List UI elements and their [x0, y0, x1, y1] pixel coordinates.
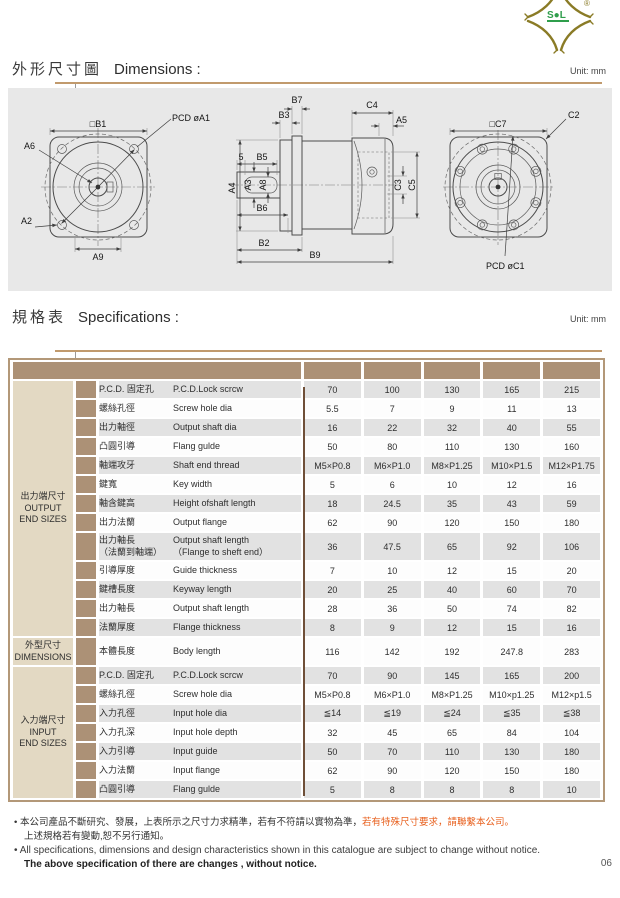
table-row: 出力軸長 （法蘭到軸端）Output shaft length （Flange …	[13, 533, 600, 560]
spec-value-cell: 130	[424, 381, 481, 398]
spec-label-zh: 螺絲孔徑	[99, 403, 173, 414]
spec-value-cell: 150	[483, 762, 540, 779]
spec-value-cell: 16	[304, 419, 361, 436]
spec-value-cell: 55	[543, 419, 600, 436]
spec-value-cell: M6×P1.0	[364, 686, 421, 703]
spec-value-cell: 142	[364, 638, 421, 665]
specifications-unit-label: Unit: mm	[570, 314, 606, 324]
spec-value-cell: 59	[543, 495, 600, 512]
dim-label-b2: B2	[258, 238, 269, 248]
table-header-size-cell	[483, 362, 540, 379]
spec-label-zh: 出力法蘭	[99, 517, 173, 528]
footnote-zh-line1: • 本公司產品不斷研究、發展，上表所示之尺寸力求精準，若有不符請以實物為準，若有…	[14, 816, 600, 830]
spec-value-cell: M12×p1.5	[543, 686, 600, 703]
spec-label-cell: 入力引導Input guide	[99, 743, 301, 760]
spec-value-cell: 12	[424, 562, 481, 579]
table-row: 入力孔徑Input hole dia≦14≦19≦24≦35≦38	[13, 705, 600, 722]
spec-label-en: Height ofshaft length	[173, 498, 301, 509]
spec-value-cell: 84	[483, 724, 540, 741]
group-color-cell	[76, 762, 96, 779]
spec-value-cell: 12	[483, 476, 540, 493]
spec-label-cell: 出力軸長Output shaft length	[99, 600, 301, 617]
table-row: 法蘭厚度Flange thickness89121516	[13, 619, 600, 636]
specifications-rule	[55, 350, 602, 352]
group-color-cell	[76, 619, 96, 636]
group-color-cell	[76, 638, 96, 665]
spec-value-cell: 25	[364, 581, 421, 598]
spec-label-en: Output shaft length	[173, 603, 301, 614]
group-color-cell	[76, 743, 96, 760]
dim-label-b3: B3	[278, 110, 289, 120]
group-color-cell	[76, 457, 96, 474]
spec-value-cell: 8	[364, 781, 421, 798]
spec-value-cell: M8×P1.25	[424, 686, 481, 703]
spec-value-cell: M5×P0.8	[304, 686, 361, 703]
dim-label-c2: C2	[568, 110, 580, 120]
group-color-cell	[76, 495, 96, 512]
spec-value-cell: M12×P1.75	[543, 457, 600, 474]
spec-label-cell: 軸端攻牙Shaft end thread	[99, 457, 301, 474]
group-color-cell	[76, 533, 96, 560]
spec-value-cell: 120	[424, 514, 481, 531]
spec-value-cell: ≦35	[483, 705, 540, 722]
dim-label-a6: A6	[24, 141, 35, 151]
dim-label-a2: A2	[21, 216, 32, 226]
logo-brand-text: S●L	[547, 10, 566, 21]
spec-value-cell: 283	[543, 638, 600, 665]
spec-label-en: Key width	[173, 479, 301, 490]
table-row: 引導厚度Guide thickness710121520	[13, 562, 600, 579]
dim-label-b5: B5	[256, 152, 267, 162]
spec-value-cell: 70	[304, 667, 361, 684]
table-header-label-cell	[13, 362, 301, 379]
spec-value-cell: 74	[483, 600, 540, 617]
spec-value-cell: M10×P1.5	[483, 457, 540, 474]
dim-label-b9: B9	[309, 250, 320, 260]
spec-label-cell: 入力法蘭Input flange	[99, 762, 301, 779]
dim-label-a5: A5	[396, 115, 407, 125]
logo-underline	[547, 20, 569, 22]
spec-label-zh: 入力法蘭	[99, 765, 173, 776]
table-row: 出力軸長Output shaft length2836507482	[13, 600, 600, 617]
spec-value-cell: 50	[424, 600, 481, 617]
spec-label-cell: P.C.D. 固定孔P.C.D.Lock scrcw	[99, 667, 301, 684]
spec-label-en: Input guide	[173, 746, 301, 757]
spec-value-cell: 16	[543, 619, 600, 636]
group-color-cell	[76, 419, 96, 436]
spec-label-zh: P.C.D. 固定孔	[99, 384, 173, 395]
dim-label-a9: A9	[92, 252, 103, 262]
spec-label-zh: 引導厚度	[99, 565, 173, 576]
spec-label-en: Keyway length	[173, 584, 301, 595]
spec-value-cell: 40	[424, 581, 481, 598]
spec-value-cell: M5×P0.8	[304, 457, 361, 474]
group-color-cell	[76, 400, 96, 417]
spec-value-cell: 104	[543, 724, 600, 741]
spec-label-en: Flang gulde	[173, 441, 301, 452]
spec-label-cell: 入力孔深Input hole depth	[99, 724, 301, 741]
spec-value-cell: 70	[543, 581, 600, 598]
spec-label-zh: 鍵寬	[99, 479, 173, 490]
spec-value-cell: 8	[304, 619, 361, 636]
spec-value-cell: M10×p1.25	[483, 686, 540, 703]
spec-value-cell: 20	[543, 562, 600, 579]
spec-label-en: Flang gulde	[173, 784, 301, 795]
spec-value-cell: 7	[364, 400, 421, 417]
spec-label-en: Guide thickness	[173, 565, 301, 576]
spec-value-cell: 192	[424, 638, 481, 665]
spec-label-en: Body length	[173, 646, 301, 657]
spec-label-cell: 引導厚度Guide thickness	[99, 562, 301, 579]
spec-label-cell: 入力孔徑Input hole dia	[99, 705, 301, 722]
rear-view: □C7 C2 PCD øC1	[443, 110, 580, 271]
spec-value-cell: ≦19	[364, 705, 421, 722]
group-color-cell	[76, 686, 96, 703]
spec-value-cell: 150	[483, 514, 540, 531]
table-row: 入力引導Input guide5070110130180	[13, 743, 600, 760]
table-row: 凸圓引導Flang gulde588810	[13, 781, 600, 798]
spec-label-zh: 本體長度	[99, 646, 173, 657]
spec-label-zh: 凸圓引導	[99, 784, 173, 795]
spec-label-cell: 螺絲孔徑Screw hole dia	[99, 400, 301, 417]
specifications-title-en: Specifications :	[78, 309, 179, 326]
spec-value-cell: 10	[364, 562, 421, 579]
spec-value-cell: 9	[424, 400, 481, 417]
spec-value-cell: 62	[304, 762, 361, 779]
table-row: 螺絲孔徑Screw hole dia5.5791113	[13, 400, 600, 417]
spec-value-cell: 215	[543, 381, 600, 398]
dim-label-c3: C3	[393, 179, 403, 191]
spec-value-cell: 116	[304, 638, 361, 665]
spec-value-cell: 65	[424, 533, 481, 560]
spec-value-cell: 145	[424, 667, 481, 684]
spec-value-cell: 90	[364, 514, 421, 531]
dimensions-unit-label: Unit: mm	[570, 66, 606, 76]
spec-label-zh: 入力孔深	[99, 727, 173, 738]
table-header-size-cell	[364, 362, 421, 379]
table-row: 入力端尺寸 INPUT END SIZESP.C.D. 固定孔P.C.D.Loc…	[13, 667, 600, 684]
spec-value-cell: 130	[483, 438, 540, 455]
spec-value-cell: 35	[424, 495, 481, 512]
spec-label-en: P.C.D.Lock scrcw	[173, 384, 301, 395]
spec-label-zh: 出力軸長	[99, 603, 173, 614]
spec-label-zh: 入力引導	[99, 746, 173, 757]
spec-value-cell: 165	[483, 667, 540, 684]
spec-value-cell: 36	[364, 600, 421, 617]
spec-label-zh: 出力軸長 （法蘭到軸端）	[99, 535, 173, 558]
dim-label-a4: A4	[227, 182, 237, 193]
table-row: 凸圓引導Flang gulde5080110130160	[13, 438, 600, 455]
group-label-cell: 外型尺寸 DIMENSIONS	[13, 638, 73, 665]
spec-value-cell: 106	[543, 533, 600, 560]
spec-label-en: Screw hole dia	[173, 403, 301, 414]
table-row: 鍵槽長度Keyway length2025406070	[13, 581, 600, 598]
footnote-en-line2: The above specification of there are cha…	[14, 858, 600, 873]
spec-value-cell: 60	[483, 581, 540, 598]
spec-value-cell: 47.5	[364, 533, 421, 560]
spec-label-en: Input hole depth	[173, 727, 301, 738]
dim-label-c5: C5	[407, 179, 417, 191]
spec-value-cell: 20	[304, 581, 361, 598]
dimensions-title-zh: 外形尺寸圖	[12, 58, 102, 79]
spec-value-cell: 10	[424, 476, 481, 493]
group-color-cell	[76, 476, 96, 493]
spec-label-cell: 出力軸長 （法蘭到軸端）Output shaft length （Flange …	[99, 533, 301, 560]
spec-value-cell: 120	[424, 762, 481, 779]
group-label-cell: 出力端尺寸 OUTPUT END SIZES	[13, 381, 73, 636]
dim-label-c7: □C7	[490, 119, 507, 129]
table-row: 入力法蘭Input flange6290120150180	[13, 762, 600, 779]
spec-label-zh: 法蘭厚度	[99, 622, 173, 633]
table-row: 外型尺寸 DIMENSIONS本體長度Body length1161421922…	[13, 638, 600, 665]
spec-value-cell: 43	[483, 495, 540, 512]
dim-label-c4: C4	[366, 100, 378, 110]
spec-value-cell: 9	[364, 619, 421, 636]
spec-value-cell: 180	[543, 743, 600, 760]
footnotes: • 本公司產品不斷研究、發展，上表所示之尺寸力求精準，若有不符請以實物為準，若有…	[14, 816, 600, 873]
front-view: □B1 PCD øA1 A6 A2 A9	[21, 113, 210, 262]
table-header-size-cell	[543, 362, 600, 379]
group-color-cell	[76, 562, 96, 579]
specifications-table: 出力端尺寸 OUTPUT END SIZESP.C.D. 固定孔P.C.D.Lo…	[8, 358, 605, 802]
dimensions-title-en: Dimensions :	[114, 61, 201, 78]
dim-label-b6: B6	[256, 203, 267, 213]
table-header-size-cell	[424, 362, 481, 379]
spec-label-zh: P.C.D. 固定孔	[99, 670, 173, 681]
group-label-cell: 入力端尺寸 INPUT END SIZES	[13, 667, 73, 798]
spec-value-cell: 24.5	[364, 495, 421, 512]
table-row: 軸含鍵高Height ofshaft length1824.5354359	[13, 495, 600, 512]
spec-value-cell: 92	[483, 533, 540, 560]
table-row: 出力軸徑Output shaft dia1622324055	[13, 419, 600, 436]
footnote-en-line1: • All specifications, dimensions and des…	[14, 844, 600, 859]
spec-value-cell: 5	[304, 476, 361, 493]
spec-value-cell: ≦14	[304, 705, 361, 722]
spec-value-cell: 65	[424, 724, 481, 741]
table-row: 鍵寬Key width56101216	[13, 476, 600, 493]
specifications-title-zh: 規格表	[12, 306, 66, 327]
catalog-page: S●L ® 外形尺寸圖 Dimensions : Unit: mm	[0, 0, 620, 898]
group-color-cell	[76, 438, 96, 455]
dimensions-drawing: □B1 PCD øA1 A6 A2 A9	[8, 88, 612, 291]
page-number: 06	[601, 858, 612, 869]
dim-label-b1: □B1	[90, 119, 106, 129]
spec-label-zh: 凸圓引導	[99, 441, 173, 452]
spec-value-cell: 15	[483, 619, 540, 636]
spec-value-cell: 50	[304, 438, 361, 455]
spec-value-cell: 18	[304, 495, 361, 512]
spec-label-cell: 出力軸徑Output shaft dia	[99, 419, 301, 436]
group-color-cell	[76, 705, 96, 722]
spec-value-cell: M8×P1.25	[424, 457, 481, 474]
spec-value-cell: 110	[424, 743, 481, 760]
brand-logo: S●L ®	[524, 0, 594, 54]
side-view: B7 B3 C4 A5 5 B5	[227, 95, 420, 264]
table-row: 出力法蘭Output flange6290120150180	[13, 514, 600, 531]
spec-label-zh: 鍵槽長度	[99, 584, 173, 595]
spec-label-cell: 螺絲孔徑Screw hole dia	[99, 686, 301, 703]
spec-label-en: Output shaft length （Flange to sheft end…	[173, 535, 301, 558]
spec-value-cell: 32	[424, 419, 481, 436]
spec-value-cell: 7	[304, 562, 361, 579]
spec-label-cell: 本體長度Body length	[99, 638, 301, 665]
spec-label-cell: 出力法蘭Output flange	[99, 514, 301, 531]
specifications-heading: 規格表 Specifications :	[12, 306, 179, 327]
spec-value-cell: 22	[364, 419, 421, 436]
spec-label-zh: 螺絲孔徑	[99, 689, 173, 700]
spec-value-cell: 12	[424, 619, 481, 636]
spec-label-en: Output shaft dia	[173, 422, 301, 433]
spec-label-cell: P.C.D. 固定孔P.C.D.Lock scrcw	[99, 381, 301, 398]
table-row: 螺絲孔徑Screw hole diaM5×P0.8M6×P1.0M8×P1.25…	[13, 686, 600, 703]
spec-label-en: Screw hole dia	[173, 689, 301, 700]
group-color-cell	[76, 581, 96, 598]
spec-value-cell: 45	[364, 724, 421, 741]
spec-value-cell: 5	[304, 781, 361, 798]
spec-label-zh: 入力孔徑	[99, 708, 173, 719]
spec-label-zh: 軸端攻牙	[99, 460, 173, 471]
group-color-cell	[76, 514, 96, 531]
spec-value-cell: 8	[424, 781, 481, 798]
spec-value-cell: 165	[483, 381, 540, 398]
spec-label-en: P.C.D.Lock scrcw	[173, 670, 301, 681]
dim-label-5: 5	[238, 152, 243, 162]
spec-value-cell: 62	[304, 514, 361, 531]
dim-label-pcd-a1: PCD øA1	[172, 113, 210, 123]
spec-value-cell: 70	[304, 381, 361, 398]
spec-value-cell: M6×P1.0	[364, 457, 421, 474]
spec-label-cell: 軸含鍵高Height ofshaft length	[99, 495, 301, 512]
spec-value-cell: 247.8	[483, 638, 540, 665]
table-header-row	[13, 362, 600, 379]
spec-value-cell: 200	[543, 667, 600, 684]
spec-label-cell: 法蘭厚度Flange thickness	[99, 619, 301, 636]
spec-value-cell: 8	[483, 781, 540, 798]
spec-label-en: Output flange	[173, 517, 301, 528]
spec-value-cell: 11	[483, 400, 540, 417]
footnote-zh-highlight: 若有特殊尺寸要求，請聯繫本公司。	[362, 817, 514, 828]
spec-label-zh: 出力軸徑	[99, 422, 173, 433]
spec-value-cell: 15	[483, 562, 540, 579]
spec-value-cell: ≦24	[424, 705, 481, 722]
table-row: 軸端攻牙Shaft end threadM5×P0.8M6×P1.0M8×P1.…	[13, 457, 600, 474]
spec-label-cell: 凸圓引導Flang gulde	[99, 781, 301, 798]
table-row: 出力端尺寸 OUTPUT END SIZESP.C.D. 固定孔P.C.D.Lo…	[13, 381, 600, 398]
spec-value-cell: 80	[364, 438, 421, 455]
dim-label-pcd-c1: PCD øC1	[486, 261, 525, 271]
dim-label-a8: A8	[258, 179, 268, 190]
spec-value-cell: 36	[304, 533, 361, 560]
spec-value-cell: 100	[364, 381, 421, 398]
dimensions-heading: 外形尺寸圖 Dimensions :	[12, 58, 201, 79]
spec-value-cell: 130	[483, 743, 540, 760]
footnote-zh-line2: 上述規格若有變動,恕不另行通知。	[14, 830, 600, 844]
spec-label-cell: 凸圓引導Flang gulde	[99, 438, 301, 455]
dim-label-a3: A3	[243, 179, 253, 190]
table-row: 入力孔深Input hole depth32456584104	[13, 724, 600, 741]
spec-value-cell: 28	[304, 600, 361, 617]
spec-label-zh: 軸含鍵高	[99, 498, 173, 509]
spec-label-en: Flange thickness	[173, 622, 301, 633]
spec-value-cell: 180	[543, 514, 600, 531]
group-color-cell	[76, 381, 96, 398]
dimensions-rule	[55, 82, 602, 84]
table-divider-line	[303, 387, 305, 796]
spec-value-cell: 10	[543, 781, 600, 798]
spec-value-cell: ≦38	[543, 705, 600, 722]
group-color-cell	[76, 781, 96, 798]
spec-value-cell: 40	[483, 419, 540, 436]
dim-label-b7: B7	[291, 95, 302, 105]
group-color-cell	[76, 724, 96, 741]
table-header-size-cell	[304, 362, 361, 379]
spec-value-cell: 6	[364, 476, 421, 493]
spec-value-cell: 110	[424, 438, 481, 455]
spec-value-cell: 82	[543, 600, 600, 617]
spec-value-cell: 180	[543, 762, 600, 779]
group-color-cell	[76, 600, 96, 617]
spec-label-en: Input flange	[173, 765, 301, 776]
spec-value-cell: 32	[304, 724, 361, 741]
spec-label-cell: 鍵槽長度Keyway length	[99, 581, 301, 598]
spec-value-cell: 160	[543, 438, 600, 455]
group-color-cell	[76, 667, 96, 684]
spec-value-cell: 70	[364, 743, 421, 760]
spec-value-cell: 90	[364, 762, 421, 779]
spec-label-cell: 鍵寬Key width	[99, 476, 301, 493]
spec-value-cell: 16	[543, 476, 600, 493]
spec-value-cell: 13	[543, 400, 600, 417]
spec-value-cell: 50	[304, 743, 361, 760]
spec-label-en: Input hole dia	[173, 708, 301, 719]
spec-label-en: Shaft end thread	[173, 460, 301, 471]
spec-value-cell: 90	[364, 667, 421, 684]
registered-mark: ®	[584, 0, 590, 8]
spec-value-cell: 5.5	[304, 400, 361, 417]
